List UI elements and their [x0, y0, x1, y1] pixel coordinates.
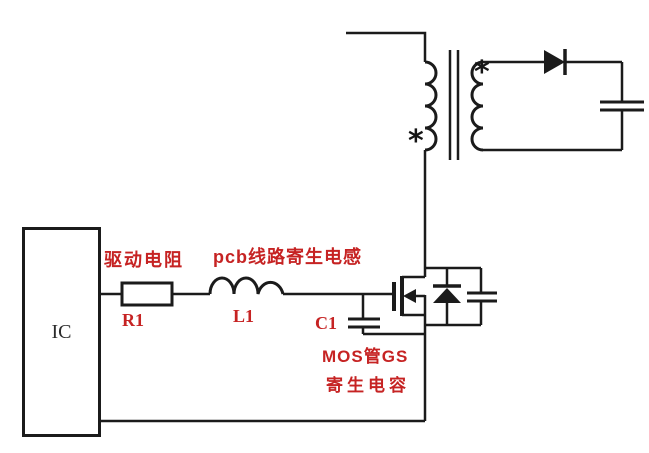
body-diode-icon — [425, 268, 481, 325]
mos-gs-annotation-line2: 寄生电容 — [326, 377, 410, 394]
drain-source-capacitor-icon — [467, 268, 497, 325]
ic-label: IC — [23, 322, 100, 342]
r1-label: R1 — [122, 311, 144, 329]
circuit-drawing — [0, 0, 649, 453]
primary-phase-dot-icon: * — [408, 127, 424, 157]
c1-label: C1 — [315, 314, 337, 332]
drive-resistor-annotation: 驱动电阻 — [104, 251, 184, 269]
resistor-r1-icon — [122, 283, 172, 305]
secondary-phase-dot-icon: * — [474, 58, 490, 88]
pcb-inductance-annotation: pcb线路寄生电感 — [213, 248, 362, 266]
output-capacitor-icon — [483, 62, 644, 150]
circuit-diagram: IC 驱动电阻 R1 pcb线路寄生电感 L1 C1 MOS管GS 寄生电容 *… — [0, 0, 649, 453]
transformer-core-icon — [450, 50, 458, 160]
inductor-l1-icon — [210, 278, 283, 294]
mos-gs-annotation-line1: MOS管GS — [322, 348, 408, 365]
l1-label: L1 — [233, 307, 254, 325]
output-diode-icon — [483, 49, 622, 75]
mosfet-icon — [394, 276, 425, 316]
